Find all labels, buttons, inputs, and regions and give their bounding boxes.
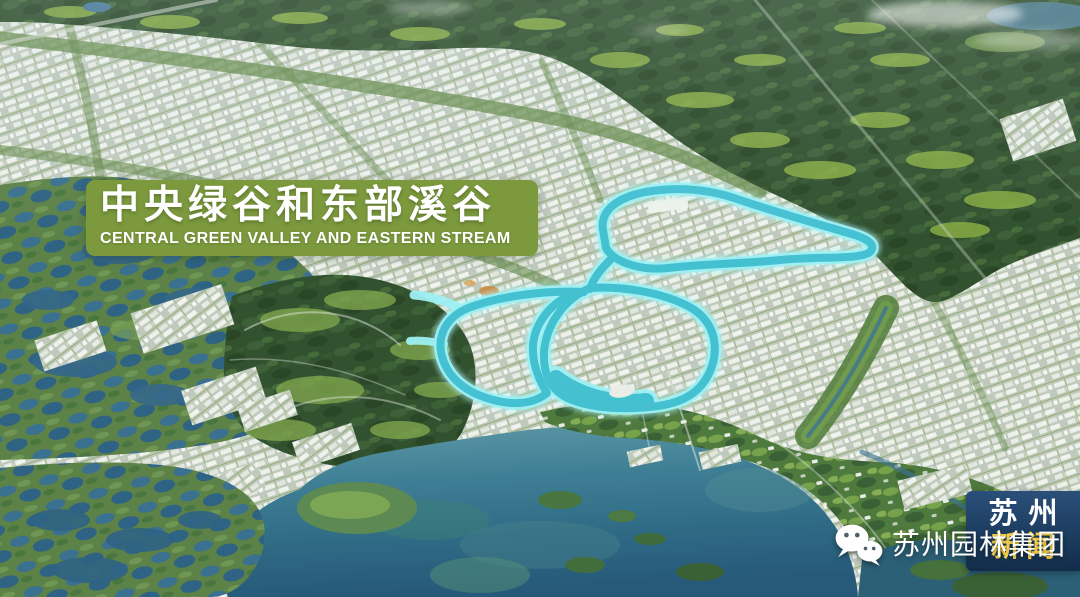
title-chinese: 中央绿谷和东部溪谷: [100, 184, 538, 228]
wechat-icon: [833, 521, 885, 569]
title-banner: 中央绿谷和东部溪谷 CENTRAL GREEN VALLEY AND EASTE…: [86, 180, 538, 256]
atmosphere-haze: [0, 0, 1080, 597]
aerial-rendering: [0, 0, 1080, 597]
watermark-text: 苏州园林集团: [892, 521, 1066, 569]
wechat-watermark: 苏州园林集团: [833, 521, 1066, 569]
title-english: CENTRAL GREEN VALLEY AND EASTERN STREAM: [100, 228, 538, 249]
scene-root: 中央绿谷和东部溪谷 CENTRAL GREEN VALLEY AND EASTE…: [0, 0, 1080, 597]
